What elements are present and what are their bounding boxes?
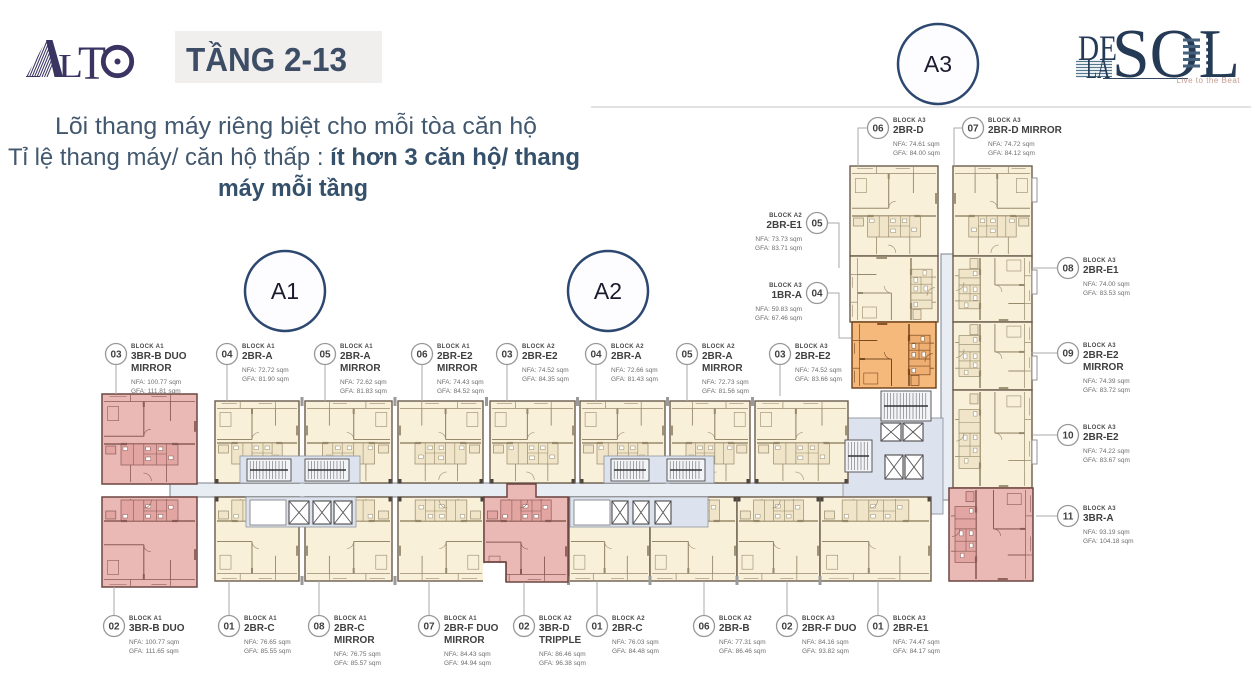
svg-text:BLOCK A2: BLOCK A2 [702, 344, 735, 350]
svg-text:08: 08 [313, 622, 325, 633]
svg-text:10: 10 [1062, 431, 1074, 442]
svg-text:BLOCK A1: BLOCK A1 [244, 616, 277, 622]
svg-text:GFA: 83.53 sqm: GFA: 83.53 sqm [1083, 290, 1130, 297]
svg-text:BLOCK A3: BLOCK A3 [893, 118, 926, 124]
svg-text:BLOCK A3: BLOCK A3 [802, 616, 835, 622]
svg-text:NFA: 74.39 sqm: NFA: 74.39 sqm [1083, 378, 1130, 385]
svg-text:NFA: 72.72 sqm: NFA: 72.72 sqm [242, 367, 289, 374]
svg-text:GFA: 83.72 sqm: GFA: 83.72 sqm [1083, 387, 1130, 394]
svg-text:GFA: 67.46 sqm: GFA: 67.46 sqm [755, 315, 802, 322]
svg-text:07: 07 [967, 124, 979, 135]
svg-text:02: 02 [518, 622, 530, 633]
svg-text:NFA: 59.83 sqm: NFA: 59.83 sqm [755, 306, 802, 313]
svg-text:NFA: 76.03 sqm: NFA: 76.03 sqm [612, 639, 659, 646]
svg-text:07: 07 [423, 622, 435, 633]
svg-text:2BR-E2: 2BR-E2 [1083, 432, 1119, 443]
svg-text:2BR-A: 2BR-A [340, 351, 371, 362]
svg-text:MIRROR: MIRROR [437, 363, 478, 374]
svg-text:BLOCK A1: BLOCK A1 [242, 344, 275, 350]
svg-text:11: 11 [1063, 512, 1074, 523]
svg-text:GFA: 104.18 sqm: GFA: 104.18 sqm [1083, 538, 1134, 545]
svg-text:NFA: 76.65 sqm: NFA: 76.65 sqm [244, 639, 291, 646]
svg-text:TẦNG 2-13: TẦNG 2-13 [186, 41, 347, 78]
svg-text:MIRROR: MIRROR [444, 635, 485, 646]
svg-text:03: 03 [501, 350, 513, 361]
svg-text:NFA: 76.75 sqm: NFA: 76.75 sqm [334, 651, 381, 658]
svg-text:GFA: 84.17 sqm: GFA: 84.17 sqm [893, 648, 940, 655]
svg-text:NFA: 77.31 sqm: NFA: 77.31 sqm [719, 639, 766, 646]
svg-text:2BR-C: 2BR-C [244, 623, 275, 634]
svg-text:01: 01 [872, 622, 884, 633]
svg-text:GFA: 86.46 sqm: GFA: 86.46 sqm [719, 648, 766, 655]
svg-text:2BR-A: 2BR-A [611, 351, 642, 362]
svg-text:GFA: 84.52 sqm: GFA: 84.52 sqm [437, 388, 484, 395]
svg-text:2BR-E2: 2BR-E2 [522, 351, 558, 362]
svg-text:1BR-A: 1BR-A [771, 290, 802, 301]
svg-text:MIRROR: MIRROR [334, 635, 375, 646]
svg-text:Lõi thang máy riêng biệt cho m: Lõi thang máy riêng biệt cho mỗi tòa căn… [55, 113, 537, 140]
svg-text:3BR-B DUO: 3BR-B DUO [131, 351, 187, 362]
svg-text:BLOCK A2: BLOCK A2 [539, 616, 572, 622]
svg-text:3BR-B DUO: 3BR-B DUO [129, 623, 185, 634]
svg-text:A3: A3 [924, 51, 952, 77]
svg-text:06: 06 [698, 622, 710, 633]
svg-text:04: 04 [221, 350, 233, 361]
svg-text:2BR-C: 2BR-C [612, 623, 643, 634]
svg-text:NFA: 74.22 sqm: NFA: 74.22 sqm [1083, 448, 1130, 455]
svg-text:NFA: 74.61 sqm: NFA: 74.61 sqm [893, 141, 940, 148]
svg-text:GFA: 94.94 sqm: GFA: 94.94 sqm [444, 660, 491, 667]
svg-text:GFA: 84.12 sqm: GFA: 84.12 sqm [988, 150, 1035, 157]
svg-text:2BR-C: 2BR-C [334, 623, 365, 634]
svg-text:LA: LA [1086, 53, 1110, 85]
svg-text:MIRROR: MIRROR [131, 363, 172, 374]
svg-text:Live to the Beat: Live to the Beat [1176, 76, 1240, 85]
svg-text:2BR-D: 2BR-D [893, 125, 924, 136]
svg-text:GFA: 85.57 sqm: GFA: 85.57 sqm [334, 660, 381, 667]
svg-text:GFA: 83.71 sqm: GFA: 83.71 sqm [755, 245, 802, 252]
svg-text:NFA: 84.43 sqm: NFA: 84.43 sqm [444, 651, 491, 658]
svg-text:BLOCK A3: BLOCK A3 [988, 118, 1021, 124]
svg-text:04: 04 [811, 289, 823, 300]
svg-text:GFA: 96.38 sqm: GFA: 96.38 sqm [539, 660, 586, 667]
svg-text:BLOCK A3: BLOCK A3 [1083, 506, 1116, 512]
svg-text:GFA: 81.43 sqm: GFA: 81.43 sqm [611, 376, 658, 383]
svg-text:A1: A1 [271, 278, 299, 304]
svg-text:05: 05 [319, 350, 331, 361]
svg-text:GFA: 83.66 sqm: GFA: 83.66 sqm [795, 376, 842, 383]
svg-text:2BR-A: 2BR-A [242, 351, 273, 362]
svg-text:2BR-F DUO: 2BR-F DUO [802, 623, 857, 634]
svg-text:BLOCK A2: BLOCK A2 [522, 344, 555, 350]
svg-text:08: 08 [1062, 264, 1074, 275]
svg-text:2BR-E2: 2BR-E2 [437, 351, 473, 362]
svg-text:BLOCK A3: BLOCK A3 [893, 616, 926, 622]
svg-text:NFA: 74.47 sqm: NFA: 74.47 sqm [893, 639, 940, 646]
svg-text:BLOCK A3: BLOCK A3 [1083, 425, 1116, 431]
svg-text:BLOCK A3: BLOCK A3 [1083, 343, 1116, 349]
svg-text:GFA: 84.48 sqm: GFA: 84.48 sqm [612, 648, 659, 655]
svg-text:NFA: 74.72 sqm: NFA: 74.72 sqm [988, 141, 1035, 148]
svg-text:02: 02 [108, 622, 120, 633]
svg-text:GFA: 81.83 sqm: GFA: 81.83 sqm [340, 388, 387, 395]
svg-text:09: 09 [1062, 349, 1074, 360]
svg-text:NFA: 86.46 sqm: NFA: 86.46 sqm [539, 651, 586, 658]
svg-text:3BR-D: 3BR-D [539, 623, 570, 634]
svg-text:2BR-F DUO: 2BR-F DUO [444, 623, 499, 634]
svg-text:BLOCK A1: BLOCK A1 [340, 344, 373, 350]
svg-text:02: 02 [781, 622, 793, 633]
svg-text:04: 04 [590, 350, 602, 361]
svg-text:05: 05 [681, 350, 693, 361]
svg-text:NFA: 74.52 sqm: NFA: 74.52 sqm [795, 367, 842, 374]
svg-text:BLOCK A2: BLOCK A2 [611, 344, 644, 350]
svg-text:TRIPPLE: TRIPPLE [539, 635, 582, 646]
svg-text:MIRROR: MIRROR [702, 363, 743, 374]
svg-text:BLOCK A2: BLOCK A2 [769, 213, 802, 219]
svg-text:Tỉ lệ thang máy/ căn hộ thấp :: Tỉ lệ thang máy/ căn hộ thấp : ít hơn 3 … [8, 144, 580, 171]
svg-text:06: 06 [416, 350, 428, 361]
svg-text:BLOCK A2: BLOCK A2 [719, 616, 752, 622]
svg-text:03: 03 [110, 350, 122, 361]
svg-text:GFA: 81.56 sqm: GFA: 81.56 sqm [702, 388, 749, 395]
svg-text:MIRROR: MIRROR [340, 363, 381, 374]
svg-text:BLOCK A1: BLOCK A1 [129, 616, 162, 622]
svg-text:3BR-A: 3BR-A [1083, 513, 1114, 524]
svg-text:BLOCK A3: BLOCK A3 [769, 283, 802, 289]
svg-text:GFA: 111.65 sqm: GFA: 111.65 sqm [129, 648, 179, 655]
svg-text:BLOCK A2: BLOCK A2 [612, 616, 645, 622]
svg-text:GFA: 81.90 sqm: GFA: 81.90 sqm [242, 376, 289, 383]
svg-text:01: 01 [223, 622, 235, 633]
svg-text:2BR-A: 2BR-A [702, 351, 733, 362]
svg-text:NFA: 93.19 sqm: NFA: 93.19 sqm [1083, 529, 1130, 536]
svg-text:2BR-E1: 2BR-E1 [1083, 265, 1119, 276]
svg-text:BLOCK A1: BLOCK A1 [444, 616, 477, 622]
svg-text:2BR-D MIRROR: 2BR-D MIRROR [988, 125, 1063, 136]
svg-text:GFA: 84.00 sqm: GFA: 84.00 sqm [893, 150, 940, 157]
svg-text:2BR-E1: 2BR-E1 [766, 220, 802, 231]
svg-text:GFA: 83.67 sqm: GFA: 83.67 sqm [1083, 457, 1130, 464]
svg-text:BLOCK A3: BLOCK A3 [795, 344, 828, 350]
svg-text:NFA: 72.66 sqm: NFA: 72.66 sqm [611, 367, 658, 374]
svg-text:A2: A2 [594, 278, 622, 304]
svg-text:GFA: 93.82 sqm: GFA: 93.82 sqm [802, 648, 849, 655]
svg-text:2BR-E2: 2BR-E2 [795, 351, 831, 362]
svg-text:NFA: 72.73 sqm: NFA: 72.73 sqm [702, 379, 749, 386]
svg-text:NFA: 73.73 sqm: NFA: 73.73 sqm [755, 236, 802, 243]
svg-text:MIRROR: MIRROR [1083, 362, 1124, 373]
svg-text:NFA: 100.77 sqm: NFA: 100.77 sqm [131, 379, 181, 386]
svg-text:06: 06 [872, 124, 884, 135]
svg-text:2BR-E2: 2BR-E2 [1083, 350, 1119, 361]
svg-text:GFA: 85.55 sqm: GFA: 85.55 sqm [244, 648, 291, 655]
svg-text:05: 05 [811, 219, 823, 230]
svg-text:BLOCK A1: BLOCK A1 [334, 616, 367, 622]
svg-text:NFA: 72.62 sqm: NFA: 72.62 sqm [340, 379, 387, 386]
svg-text:BLOCK A3: BLOCK A3 [1083, 258, 1116, 264]
svg-text:NFA: 84.16 sqm: NFA: 84.16 sqm [802, 639, 849, 646]
svg-text:GFA: 111.81 sqm: GFA: 111.81 sqm [131, 388, 181, 395]
svg-text:máy mỗi tầng: máy mỗi tầng [218, 174, 368, 202]
svg-text:NFA: 74.43 sqm: NFA: 74.43 sqm [437, 379, 484, 386]
svg-text:2BR-B: 2BR-B [719, 623, 750, 634]
svg-text:2BR-E1: 2BR-E1 [893, 623, 929, 634]
svg-text:BLOCK A1: BLOCK A1 [131, 344, 164, 350]
svg-text:NFA: 74.52 sqm: NFA: 74.52 sqm [522, 367, 569, 374]
svg-text:GFA: 84.35 sqm: GFA: 84.35 sqm [522, 376, 569, 383]
svg-text:NFA: 74.00 sqm: NFA: 74.00 sqm [1083, 281, 1130, 288]
svg-text:01: 01 [591, 622, 603, 633]
svg-text:NFA: 100.77 sqm: NFA: 100.77 sqm [129, 639, 179, 646]
svg-text:BLOCK A1: BLOCK A1 [437, 344, 470, 350]
svg-text:03: 03 [774, 350, 786, 361]
